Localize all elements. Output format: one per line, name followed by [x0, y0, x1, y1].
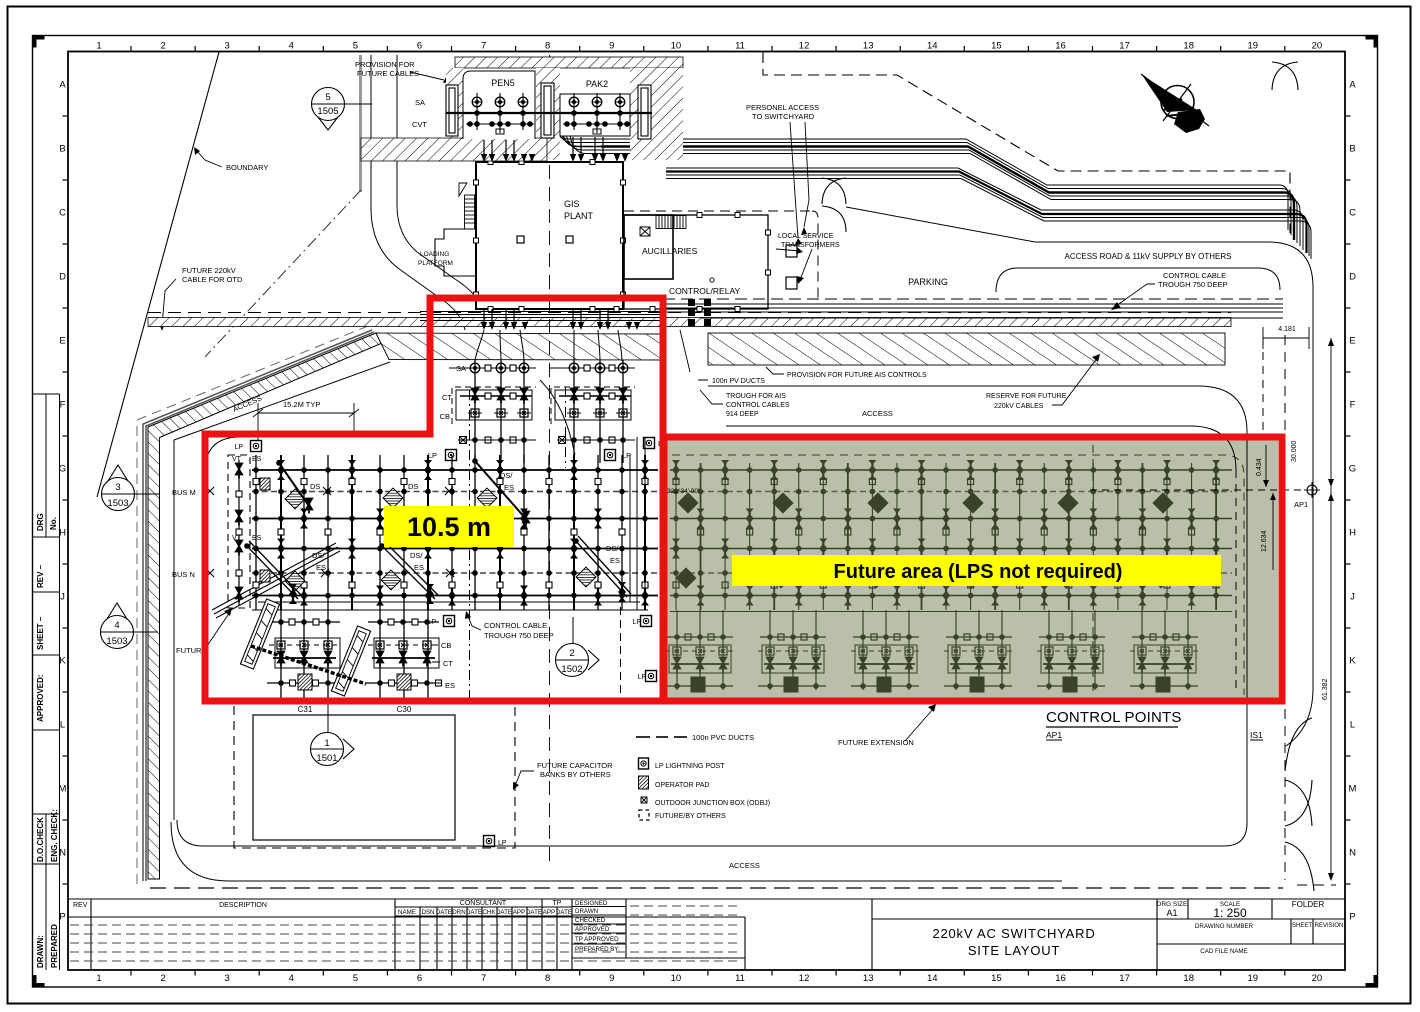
svg-text:ES: ES: [504, 483, 514, 492]
svg-text:8: 8: [545, 973, 550, 984]
svg-text:15.2M TYP: 15.2M TYP: [283, 400, 320, 409]
svg-text:ES: ES: [252, 456, 262, 463]
svg-text:DESIGNED: DESIGNED: [575, 900, 608, 907]
svg-text:FUTURE/BY OTHERS: FUTURE/BY OTHERS: [655, 813, 726, 820]
svg-text:13: 13: [863, 41, 874, 52]
svg-text:GIS: GIS: [564, 199, 580, 209]
svg-text:DRAWN:: DRAWN:: [36, 935, 45, 968]
svg-text:PROVISION FOR: PROVISION FOR: [355, 60, 415, 69]
svg-text:DS/: DS/: [606, 544, 619, 553]
svg-text:15: 15: [991, 973, 1002, 984]
svg-text:14: 14: [927, 973, 938, 984]
svg-text:100n PV DUCTS: 100n PV DUCTS: [712, 378, 765, 385]
svg-text:3: 3: [225, 41, 230, 52]
svg-text:APP: APP: [513, 909, 525, 916]
svg-text:2: 2: [160, 973, 165, 984]
svg-text:OUTDOOR JUNCTION BOX (ODBJ): OUTDOOR JUNCTION BOX (ODBJ): [655, 800, 770, 807]
svg-text:TP: TP: [553, 900, 562, 907]
svg-text:PREPARED BY:: PREPARED BY:: [575, 946, 620, 953]
svg-text:NAME: NAME: [398, 909, 416, 916]
svg-text:D: D: [1349, 272, 1356, 283]
svg-text:7: 7: [481, 973, 486, 984]
svg-text:4: 4: [289, 41, 294, 52]
svg-text:FUTURE CABLES: FUTURE CABLES: [357, 69, 419, 78]
svg-text:CVT: CVT: [412, 120, 427, 129]
svg-text:ES: ES: [610, 556, 620, 565]
svg-text:APP: APP: [543, 909, 555, 916]
svg-text:DRG: DRG: [36, 513, 45, 531]
svg-text:10.5 m: 10.5 m: [407, 512, 491, 542]
svg-text:1502: 1502: [561, 664, 582, 675]
svg-text:LOCAL SERVICE: LOCAL SERVICE: [778, 233, 834, 240]
svg-text:BUS M: BUS M: [172, 488, 196, 497]
svg-text:16: 16: [1055, 41, 1066, 52]
svg-text:BOUNDARY: BOUNDARY: [226, 163, 268, 172]
svg-text:AUCILLARIES: AUCILLARIES: [642, 246, 698, 256]
svg-text:CONTROL CABLE: CONTROL CABLE: [1163, 271, 1226, 280]
svg-text:K: K: [59, 656, 66, 667]
svg-text:61.382: 61.382: [1322, 678, 1329, 700]
svg-text:CT: CT: [443, 659, 453, 668]
svg-text:REV –: REV –: [36, 564, 45, 588]
svg-text:1: 1: [324, 738, 329, 749]
svg-text:VT: VT: [232, 456, 242, 463]
svg-text:1503: 1503: [106, 636, 127, 647]
svg-text:18: 18: [1183, 41, 1194, 52]
svg-text:6: 6: [417, 41, 422, 52]
svg-text:9: 9: [609, 41, 614, 52]
svg-text:12: 12: [799, 973, 810, 984]
svg-text:FUTURE CAPACITOR: FUTURE CAPACITOR: [537, 761, 613, 770]
svg-text:ACCESS ROAD & 11kV SUPPLY BY O: ACCESS ROAD & 11kV SUPPLY BY OTHERS: [1064, 252, 1231, 261]
svg-text:DRG SIZE: DRG SIZE: [1157, 901, 1188, 908]
svg-text:10: 10: [671, 973, 682, 984]
svg-text:CONTROL POINTS: CONTROL POINTS: [1046, 709, 1182, 726]
svg-text:220kV CABLES: 220kV CABLES: [994, 403, 1044, 410]
svg-text:P: P: [1349, 912, 1355, 923]
svg-text:E: E: [1349, 336, 1355, 347]
svg-text:16: 16: [1055, 973, 1066, 984]
svg-text:E: E: [59, 336, 65, 347]
svg-text:ES: ES: [316, 563, 326, 572]
svg-text:914 DEEP: 914 DEEP: [726, 411, 759, 418]
svg-text:20: 20: [1312, 973, 1323, 984]
svg-text:100n PVC DUCTS: 100n PVC DUCTS: [692, 733, 754, 742]
svg-text:12.634: 12.634: [1261, 530, 1268, 552]
svg-text:DATE: DATE: [526, 909, 542, 916]
svg-text:19: 19: [1248, 41, 1259, 52]
svg-text:8: 8: [545, 41, 550, 52]
svg-text:10: 10: [671, 41, 682, 52]
svg-text:1: 1: [96, 973, 101, 984]
svg-text:20: 20: [1312, 41, 1323, 52]
svg-text:19: 19: [1248, 973, 1259, 984]
svg-text:PEN5: PEN5: [491, 78, 515, 88]
svg-text:CHECKED: CHECKED: [575, 917, 606, 924]
svg-text:2: 2: [160, 41, 165, 52]
svg-text:DS/: DS/: [312, 551, 325, 560]
svg-text:No.: No.: [49, 517, 58, 530]
svg-text:DATE: DATE: [466, 909, 482, 916]
svg-text:PERSONEL ACCESS: PERSONEL ACCESS: [746, 103, 819, 112]
svg-text:LOADING: LOADING: [420, 251, 449, 258]
svg-text:SITE LAYOUT: SITE LAYOUT: [968, 943, 1060, 958]
svg-text:DSN: DSN: [421, 909, 434, 916]
svg-text:G: G: [1349, 464, 1356, 475]
svg-text:DATE: DATE: [556, 909, 572, 916]
svg-text:DATE: DATE: [436, 909, 452, 916]
svg-text:DRN: DRN: [452, 909, 465, 916]
svg-text:B: B: [1349, 144, 1355, 155]
svg-text:A1: A1: [1166, 908, 1177, 918]
svg-text:4: 4: [114, 620, 119, 631]
svg-text:3: 3: [225, 973, 230, 984]
svg-text:LP LIGHTNING POST: LP LIGHTNING POST: [655, 763, 725, 770]
svg-text:ES: ES: [252, 535, 262, 542]
svg-text:APPROVED: APPROVED: [575, 926, 610, 933]
svg-text:CB: CB: [441, 641, 451, 650]
svg-text:P: P: [59, 912, 65, 923]
svg-text:H: H: [1349, 528, 1356, 539]
svg-text:N: N: [1349, 848, 1356, 859]
svg-text:APPROVED:: APPROVED:: [36, 674, 45, 722]
svg-text:PAK2: PAK2: [586, 79, 608, 89]
svg-text:TROUGH 750 DEEP: TROUGH 750 DEEP: [484, 631, 554, 640]
svg-text:LP: LP: [632, 619, 641, 626]
svg-text:REV: REV: [73, 902, 88, 909]
svg-text:DRAWING NUMBER: DRAWING NUMBER: [1195, 923, 1254, 930]
svg-text:DRAWN: DRAWN: [575, 908, 598, 915]
svg-text:A: A: [1349, 80, 1356, 91]
svg-text:PLATFORM: PLATFORM: [418, 260, 453, 267]
svg-text:VT: VT: [232, 535, 242, 542]
svg-text:PARKING: PARKING: [908, 277, 948, 287]
svg-text:30.000: 30.000: [1291, 440, 1298, 462]
svg-text:CONTROL/RELAY: CONTROL/RELAY: [669, 286, 740, 296]
svg-text:A: A: [59, 80, 66, 91]
svg-text:3: 3: [115, 482, 120, 493]
svg-text:DS: DS: [408, 482, 418, 491]
svg-text:CAD FILE NAME: CAD FILE NAME: [1200, 948, 1247, 955]
svg-text:OPERATOR PAD: OPERATOR PAD: [655, 782, 709, 789]
svg-text:5: 5: [353, 973, 358, 984]
svg-text:18: 18: [1183, 973, 1194, 984]
svg-text:SHEET –: SHEET –: [36, 616, 45, 650]
svg-text:AP1: AP1: [1046, 730, 1062, 740]
svg-text:LP: LP: [637, 674, 646, 681]
svg-text:N: N: [59, 848, 66, 859]
svg-text:DATE: DATE: [496, 909, 512, 916]
svg-text:322°34′ 00″: 322°34′ 00″: [667, 487, 701, 495]
svg-text:LP: LP: [234, 444, 243, 451]
svg-text:AP1: AP1: [1294, 500, 1308, 509]
svg-text:FUTURE 220kV: FUTURE 220kV: [182, 266, 236, 275]
svg-text:12: 12: [799, 41, 810, 52]
svg-text:CT: CT: [442, 393, 452, 402]
svg-text:ES: ES: [445, 681, 455, 690]
svg-text:C: C: [1349, 208, 1356, 219]
svg-text:H: H: [59, 528, 66, 539]
svg-text:TO SWITCHYARD: TO SWITCHYARD: [752, 112, 815, 121]
svg-text:TROUGH FOR AIS: TROUGH FOR AIS: [726, 393, 786, 400]
svg-text:C: C: [59, 208, 66, 219]
svg-text:7: 7: [481, 41, 486, 52]
svg-text:D.O.CHECK: D.O.CHECK: [36, 817, 45, 862]
svg-text:FUTURE EXTENSION: FUTURE EXTENSION: [838, 738, 914, 747]
svg-text:1503: 1503: [107, 498, 128, 509]
svg-text:IS1: IS1: [1250, 730, 1263, 740]
svg-text:1505: 1505: [317, 106, 338, 117]
svg-text:DS/: DS/: [500, 471, 513, 480]
svg-text:LP: LP: [427, 619, 436, 626]
svg-text:17: 17: [1119, 41, 1130, 52]
svg-text:4.181: 4.181: [1278, 326, 1296, 333]
svg-text:17: 17: [1119, 973, 1130, 984]
svg-text:ACCESS: ACCESS: [729, 861, 760, 870]
svg-text:J: J: [60, 592, 65, 603]
svg-text:F: F: [1350, 400, 1356, 411]
svg-text:11: 11: [735, 41, 745, 52]
svg-text:PROVISION FOR FUTURE AIS CONTR: PROVISION FOR FUTURE AIS CONTROLS: [787, 372, 927, 379]
svg-text:ACCESS: ACCESS: [862, 409, 893, 418]
svg-text:15: 15: [991, 41, 1002, 52]
svg-text:SA: SA: [415, 98, 425, 107]
svg-text:CONSULTANT: CONSULTANT: [460, 900, 507, 907]
svg-text:B: B: [59, 144, 65, 155]
svg-text:LP: LP: [428, 451, 437, 460]
svg-text:4: 4: [289, 973, 294, 984]
svg-text:L: L: [60, 720, 65, 731]
svg-text:220kV AC SWITCHYARD: 220kV AC SWITCHYARD: [932, 926, 1095, 941]
svg-text:J: J: [1350, 592, 1355, 603]
svg-text:DS: DS: [310, 482, 320, 491]
svg-text:0.434: 0.434: [1256, 458, 1263, 476]
svg-text:CONTROL CABLES: CONTROL CABLES: [726, 402, 790, 409]
svg-text:C31: C31: [298, 705, 313, 714]
svg-text:1501: 1501: [316, 753, 337, 764]
svg-text:L: L: [1350, 720, 1355, 731]
svg-text:9: 9: [609, 973, 614, 984]
svg-text:13: 13: [863, 973, 874, 984]
svg-text:FOLDER: FOLDER: [1292, 900, 1325, 909]
svg-text:RESERVE FOR FUTURE: RESERVE FOR FUTURE: [986, 393, 1067, 400]
svg-text:CHK: CHK: [482, 909, 496, 916]
svg-text:6: 6: [417, 973, 422, 984]
svg-text:14: 14: [927, 41, 938, 52]
svg-text:M: M: [1349, 784, 1357, 795]
svg-text:ES: ES: [414, 563, 424, 572]
svg-text:BUS N: BUS N: [172, 570, 195, 579]
svg-text:2: 2: [569, 648, 574, 659]
svg-text:11: 11: [735, 973, 745, 984]
svg-text:ENG. CHECK:: ENG. CHECK:: [50, 809, 59, 862]
svg-text:C30: C30: [397, 705, 412, 714]
svg-text:DESCRIPTION: DESCRIPTION: [219, 902, 267, 909]
svg-text:5: 5: [325, 92, 330, 103]
svg-text:TROUGH 750 DEEP: TROUGH 750 DEEP: [1158, 280, 1228, 289]
svg-text:1: 1: [96, 41, 101, 52]
svg-text:TP APPROVED: TP APPROVED: [575, 936, 619, 943]
svg-text:Future area (LPS not required): Future area (LPS not required): [834, 561, 1123, 583]
svg-text:REVISION: REVISION: [1315, 923, 1344, 929]
svg-text:PLANT: PLANT: [564, 211, 594, 221]
svg-text:5: 5: [353, 41, 358, 52]
svg-text:BANKS BY OTHERS: BANKS BY OTHERS: [540, 770, 611, 779]
svg-text:K: K: [1349, 656, 1356, 667]
svg-text:F: F: [60, 400, 66, 411]
svg-text:1: 250: 1: 250: [1213, 906, 1247, 920]
svg-text:CONTROL CABLE: CONTROL CABLE: [484, 621, 547, 630]
svg-text:PREPARED: PREPARED: [50, 924, 59, 968]
svg-text:CB: CB: [440, 412, 450, 421]
svg-text:D: D: [59, 272, 66, 283]
svg-text:CABLE FOR OTD: CABLE FOR OTD: [182, 275, 243, 284]
svg-text:SHEET: SHEET: [1292, 923, 1312, 929]
svg-text:DS/: DS/: [410, 551, 423, 560]
